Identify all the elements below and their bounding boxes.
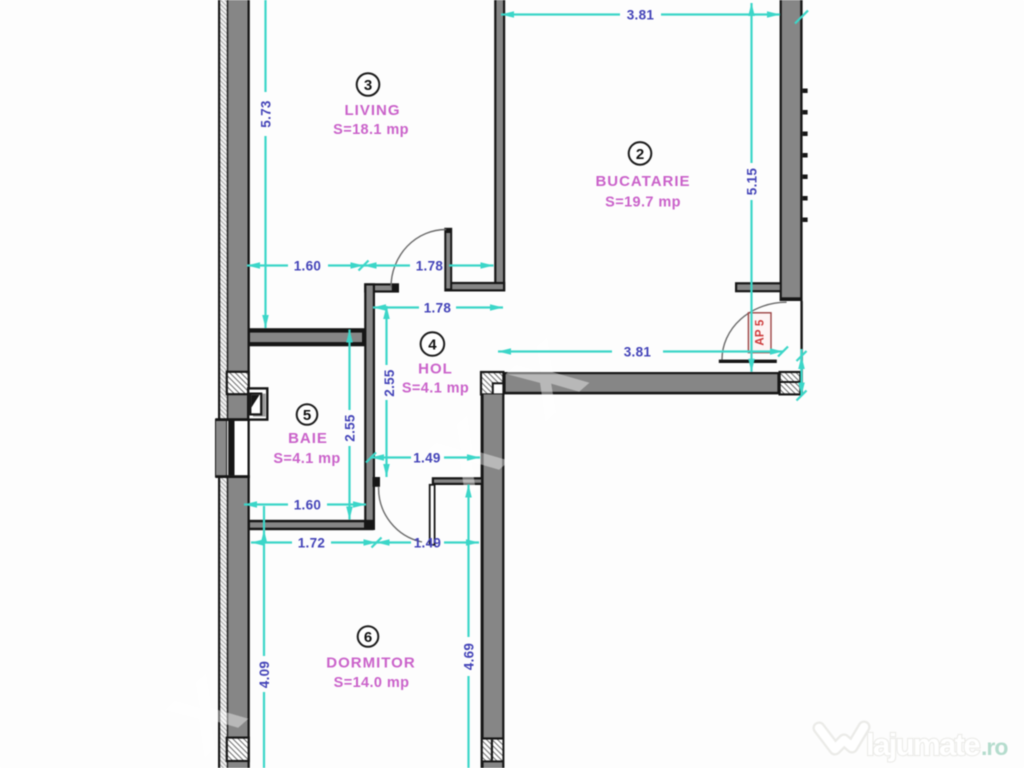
svg-text:4.69: 4.69 (462, 643, 477, 670)
svg-text:DORMITOR: DORMITOR (326, 655, 415, 672)
svg-text:5.73: 5.73 (259, 100, 274, 128)
svg-text:2: 2 (636, 146, 644, 163)
svg-text:1.60: 1.60 (294, 259, 321, 274)
svg-text:1.72: 1.72 (298, 536, 325, 551)
svg-text:HOL: HOL (418, 361, 453, 378)
svg-text:2.55: 2.55 (343, 414, 358, 442)
svg-text:3.81: 3.81 (624, 345, 652, 360)
svg-text:4: 4 (428, 337, 437, 354)
svg-text:1.49: 1.49 (414, 536, 441, 551)
svg-text:S=4.1 mp: S=4.1 mp (273, 451, 340, 467)
svg-text:S=4.1 mp: S=4.1 mp (402, 381, 469, 397)
svg-text:1.78: 1.78 (416, 259, 444, 274)
svg-text:3.81: 3.81 (627, 8, 655, 23)
svg-text:.ro: .ro (981, 734, 1008, 760)
svg-text:5.15: 5.15 (745, 168, 760, 196)
svg-text:3: 3 (364, 77, 372, 94)
svg-text:lajumate: lajumate (866, 727, 980, 762)
svg-text:1.49: 1.49 (413, 451, 440, 466)
svg-text:BUCATARIE: BUCATARIE (595, 173, 690, 190)
svg-text:BAIE: BAIE (288, 430, 328, 447)
svg-text:2.55: 2.55 (382, 369, 397, 397)
svg-text:1.78: 1.78 (424, 301, 452, 316)
svg-text:6: 6 (364, 629, 372, 646)
svg-text:S=19.7 mp: S=19.7 mp (605, 195, 681, 211)
svg-text:AP 5: AP 5 (755, 319, 767, 346)
svg-text:1.60: 1.60 (294, 498, 321, 513)
svg-text:LIVING: LIVING (344, 102, 400, 119)
svg-text:4.09: 4.09 (257, 661, 272, 688)
svg-text:S=18.1 mp: S=18.1 mp (333, 122, 409, 138)
svg-text:5: 5 (303, 407, 311, 424)
svg-text:S=14.0 mp: S=14.0 mp (334, 675, 410, 691)
